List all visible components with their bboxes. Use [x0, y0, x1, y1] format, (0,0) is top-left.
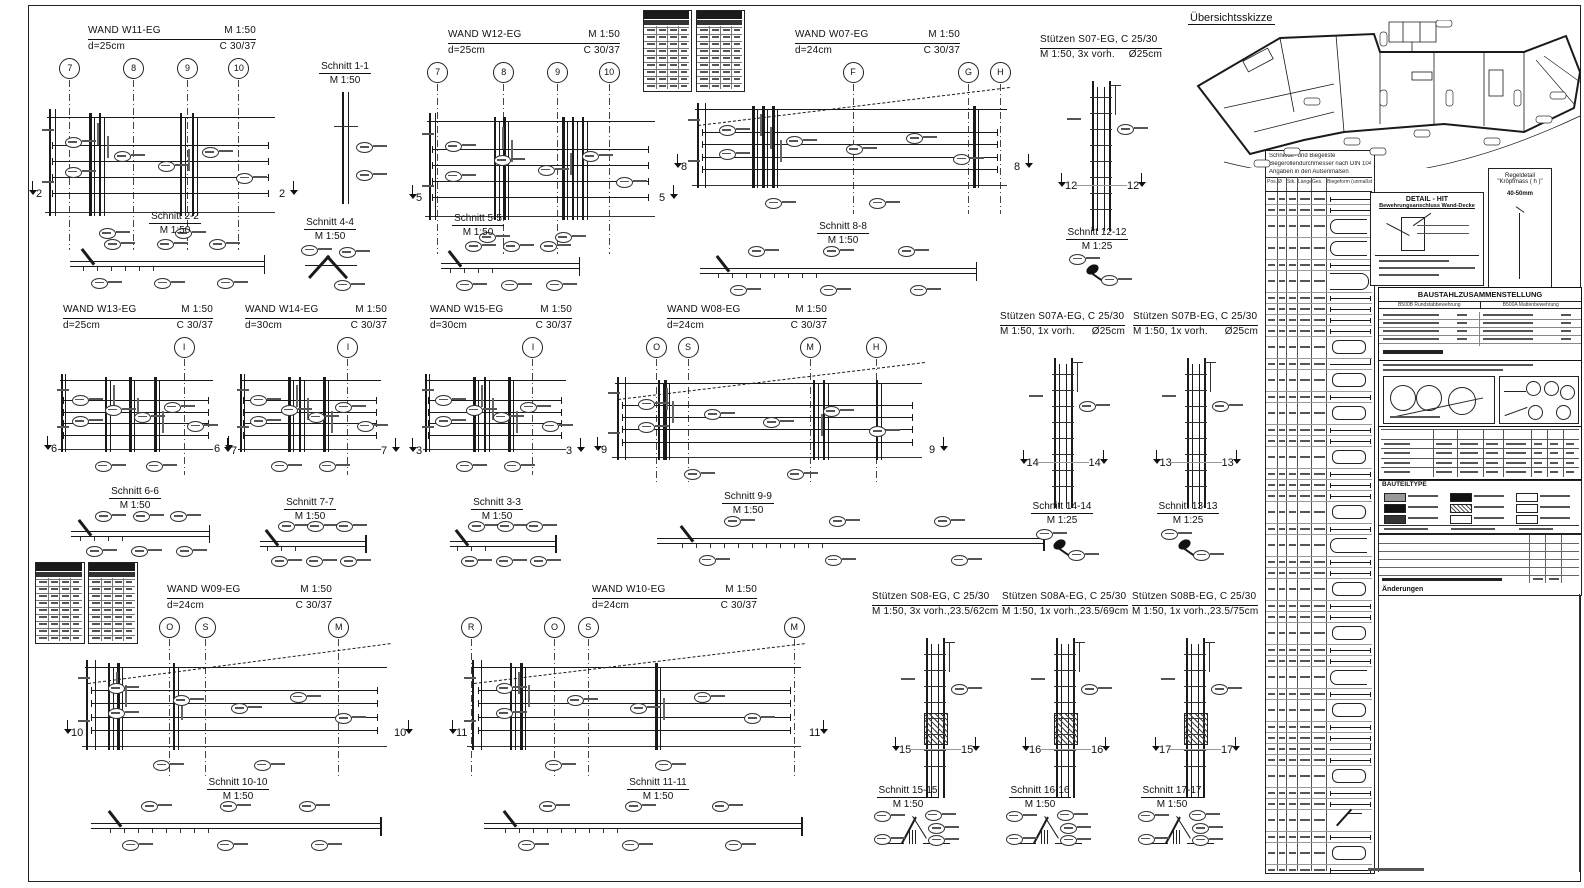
detail-bar1 [1417, 225, 1469, 226]
text-sim [39, 581, 47, 583]
callout-label [171, 281, 185, 283]
line [1266, 523, 1372, 524]
text-sim [723, 50, 730, 52]
text-sim [1289, 869, 1296, 871]
text-sim [1289, 737, 1296, 739]
section-label: Schnitt 6-6M 1:50 [80, 485, 190, 512]
text-sim [1314, 379, 1325, 381]
position-callout [465, 241, 482, 252]
callout-label [288, 464, 302, 466]
line [1266, 237, 1372, 238]
text-sim [723, 43, 730, 45]
text-sim [1486, 462, 1498, 464]
callout-text [827, 250, 836, 252]
line [710, 544, 711, 548]
callout-label [891, 837, 905, 839]
line [1370, 296, 1371, 301]
position-callout [846, 144, 863, 155]
grid-bubble: H [990, 62, 1011, 83]
legend-swatch [1450, 493, 1472, 502]
grid-line [554, 639, 555, 777]
cut-number: 7 [381, 446, 387, 456]
text-sim [659, 85, 666, 87]
column-count: M 1:50, 1x vorh. [1000, 325, 1075, 340]
position-callout [616, 177, 633, 188]
callout-label [1178, 532, 1192, 534]
line [1330, 307, 1331, 312]
text-sim [1436, 471, 1452, 473]
steel-title: BAUSTAHLZUSAMMENSTELLUNG [1379, 290, 1581, 299]
line [450, 269, 451, 273]
line [752, 544, 753, 548]
rotated-label-sim [481, 385, 483, 407]
callout-text [254, 399, 263, 401]
text-sim [1566, 452, 1574, 454]
line [1330, 804, 1370, 805]
callout-label [234, 281, 248, 283]
line [1330, 650, 1370, 651]
callout-label [804, 472, 818, 474]
right-border-right [1579, 594, 1580, 872]
line [648, 178, 649, 185]
text-sim [1300, 198, 1310, 200]
line [697, 20, 742, 25]
line [1090, 209, 1112, 210]
column-title-row: Stützen S07-EG, C 25/30 [1040, 33, 1162, 49]
callout-label [563, 283, 577, 285]
position-callout [335, 402, 352, 413]
position-callout [638, 399, 655, 410]
text-sim [1268, 676, 1275, 678]
cut-arrowhead [1138, 182, 1146, 187]
line [1115, 85, 1116, 115]
text-sim [73, 623, 79, 625]
callout-label [968, 558, 982, 560]
shape-stirrup [1332, 846, 1366, 860]
panel-thickness: d=24cm [795, 44, 832, 59]
wall-drawing: ROSM1111 [460, 617, 815, 783]
cut-arrowhead [577, 447, 585, 452]
line [1381, 467, 1579, 468]
position-callout [1006, 834, 1023, 845]
callout-text [1196, 827, 1205, 829]
grid-bubble: M [328, 617, 349, 638]
text-sim [681, 78, 687, 80]
line [924, 766, 946, 767]
line [1561, 535, 1562, 583]
text-sim [1279, 297, 1285, 299]
text-sim [1289, 297, 1296, 299]
callout-label [572, 235, 586, 237]
section-name: Schnitt 13-13 [1157, 500, 1220, 514]
line [648, 194, 649, 201]
text-sim [104, 595, 111, 597]
position-callout [170, 511, 187, 522]
text-sim [1300, 759, 1310, 761]
position-callout [699, 555, 716, 566]
position-callout [1212, 401, 1229, 412]
line [1330, 562, 1370, 563]
text-sim [1268, 209, 1275, 211]
text-sim [1300, 264, 1310, 266]
line [441, 268, 579, 269]
text-sim [1383, 330, 1439, 332]
position-callout [712, 801, 729, 812]
text-sim [1279, 709, 1285, 711]
callout-text [688, 473, 697, 475]
line [1103, 450, 1104, 459]
line [1370, 560, 1371, 565]
line [49, 109, 51, 216]
text-sim [1268, 528, 1275, 530]
line [1039, 749, 1091, 750]
line [99, 113, 102, 216]
regel-bar-kink [1516, 206, 1525, 213]
callout-label [112, 514, 126, 516]
section-drawing [872, 806, 957, 852]
section-drawing [1160, 527, 1220, 565]
bottom-right-note [1368, 868, 1424, 871]
line [1266, 534, 1372, 535]
line [695, 109, 1007, 110]
callout-text [1082, 405, 1091, 407]
text-sim [1314, 396, 1325, 398]
line [194, 829, 195, 833]
line [238, 449, 381, 450]
callout-text [469, 409, 478, 411]
line [677, 154, 678, 163]
wall-drawing: OSMH99 [605, 337, 935, 491]
line [1185, 422, 1207, 423]
text-sim [92, 609, 100, 611]
line [1061, 173, 1062, 182]
text-sim [1314, 869, 1325, 871]
line [325, 255, 347, 279]
detail-row2 [1379, 267, 1475, 269]
callout-label [89, 398, 103, 400]
callout-text [932, 827, 941, 829]
text-sim [1460, 471, 1478, 473]
line [129, 377, 132, 452]
line [153, 267, 154, 271]
column-size: Ø25cm [1225, 325, 1258, 340]
panel-title: WAND W13-EG [63, 303, 137, 318]
text-sim [1289, 693, 1296, 695]
text-sim [1314, 528, 1325, 530]
text-sim [1550, 471, 1558, 473]
callout-label [356, 250, 370, 252]
detail-hit-box: DETAIL - HIT Bewehrungsanschluss Wand-De… [1370, 192, 1484, 286]
text-sim [659, 50, 666, 52]
text-sim [1300, 748, 1310, 750]
line [377, 714, 378, 721]
position-callout [829, 516, 846, 527]
position-callout [158, 161, 175, 172]
text-sim [422, 426, 434, 428]
position-callout [869, 198, 886, 209]
line [1266, 556, 1372, 557]
position-callout [308, 412, 325, 423]
line [1184, 766, 1206, 767]
callout-text [826, 410, 835, 412]
line [716, 255, 731, 273]
line [767, 109, 768, 188]
text-sim [1289, 561, 1296, 563]
text-sim [1300, 649, 1310, 651]
text-sim [39, 623, 47, 625]
line [304, 380, 305, 452]
text-sim [723, 64, 730, 66]
cut-arrowhead [1232, 746, 1240, 751]
line [1266, 358, 1372, 359]
text-sim [115, 609, 122, 611]
line [1266, 479, 1372, 480]
position-callout [281, 405, 298, 416]
position-callout [356, 170, 373, 181]
callout-label [352, 405, 366, 407]
line [1266, 490, 1372, 491]
line [656, 26, 657, 89]
cut-number: 17 [1159, 745, 1171, 755]
text-sim [1408, 506, 1438, 508]
text-sim [51, 616, 58, 618]
callout-text [824, 289, 833, 291]
section-label: Schnitt 12-12M 1:25 [1042, 226, 1152, 253]
text-sim [126, 616, 132, 618]
text-sim [1268, 308, 1275, 310]
text-sim [734, 71, 740, 73]
callout-label [288, 559, 302, 561]
text-sim [62, 581, 69, 583]
text-sim [1483, 330, 1533, 332]
text-sim [1279, 484, 1285, 486]
line [1054, 670, 1076, 671]
text-sim [1550, 452, 1558, 454]
section-scale: M 1:50 [290, 74, 400, 87]
grid-bubble: O [159, 617, 180, 638]
callout-text [522, 844, 531, 846]
line [95, 660, 96, 750]
position-callout [928, 823, 945, 834]
callout-text [161, 165, 170, 167]
callout-label [543, 524, 557, 526]
text-sim [1314, 803, 1325, 805]
line [1330, 329, 1331, 334]
callout-label [765, 249, 779, 251]
section-label: Schnitt 9-9M 1:50 [693, 490, 803, 517]
column-subtitle-row: M 1:50, 1x vorh.Ø25cm [1133, 325, 1258, 340]
line [108, 663, 111, 749]
callout-label [1210, 553, 1224, 555]
text-sim [1483, 338, 1533, 340]
position-callout [1192, 823, 1209, 834]
text-sim [1540, 517, 1570, 519]
line [492, 269, 493, 273]
callout-label [803, 139, 817, 141]
rotated-label-sim [162, 411, 164, 433]
section-drawing [445, 520, 560, 570]
line [108, 537, 109, 541]
callout-text [160, 243, 169, 245]
position-callout [250, 416, 267, 427]
line [1266, 578, 1372, 579]
text-sim [1279, 748, 1285, 750]
line [881, 383, 882, 460]
text-sim [1451, 528, 1495, 530]
text-sim [422, 389, 434, 391]
line [1330, 208, 1331, 213]
panel-title-row: WAND W12-EGM 1:50 [448, 28, 620, 44]
position-callout [501, 280, 518, 291]
shape-stirrup [1332, 450, 1366, 464]
text-sim [1566, 443, 1574, 445]
text-sim [62, 595, 69, 597]
panel-thickness: d=24cm [167, 599, 204, 614]
line [334, 126, 358, 127]
section-label: Schnitt 11-11M 1:50 [603, 776, 713, 803]
panel-title-row: WAND W08-EGM 1:50 [667, 303, 827, 319]
callout-text [1064, 827, 1073, 829]
line [697, 103, 699, 188]
line [489, 380, 490, 452]
line [432, 194, 433, 201]
text-sim [670, 43, 677, 45]
line [667, 26, 668, 89]
text-sim [1561, 314, 1571, 316]
position-callout [336, 521, 353, 532]
line [376, 409, 377, 416]
rotated-label-sim [770, 127, 772, 149]
text-sim [1300, 456, 1310, 458]
callout-text [257, 764, 266, 766]
line [1266, 688, 1372, 689]
text-sim [734, 36, 740, 38]
position-callout [1189, 810, 1206, 821]
line [94, 537, 95, 541]
position-callout [86, 546, 103, 557]
callout-label [510, 415, 524, 417]
text-sim [659, 64, 666, 66]
line [1266, 699, 1372, 700]
legend-swatch [1450, 504, 1472, 513]
text-sim [1300, 297, 1310, 299]
column-count: M 1:50, 3x vorh., [872, 605, 950, 620]
text-sim [1268, 572, 1275, 574]
callout-text [460, 465, 469, 467]
text-sim [1483, 314, 1533, 316]
text-sim [1279, 209, 1285, 211]
position-callout [176, 546, 193, 557]
section-drawing [1035, 527, 1095, 565]
line [166, 829, 167, 833]
text-sim [1279, 264, 1285, 266]
line [802, 274, 803, 278]
text-sim [1506, 452, 1526, 454]
callout-text [1215, 688, 1224, 690]
text-sim [1279, 676, 1285, 678]
line [777, 109, 778, 188]
text-sim [1289, 225, 1296, 227]
text-sim [1300, 660, 1310, 662]
line [1109, 85, 1121, 86]
callout-text [558, 236, 567, 238]
rotated-label-sim [113, 385, 115, 407]
text-sim [1279, 412, 1285, 414]
line [997, 129, 998, 136]
section-scale: M 1:25 [1133, 514, 1243, 527]
section-drawing [688, 245, 988, 300]
text-sim [1300, 605, 1310, 607]
callout-label [163, 464, 177, 466]
text-sim [42, 181, 54, 183]
text-sim [700, 64, 708, 66]
grid-bubble: M [800, 337, 821, 358]
section-drawing [78, 800, 393, 855]
text-sim [1268, 605, 1275, 607]
callout-text [873, 202, 882, 204]
cut-arrowhead [449, 729, 457, 734]
grid-line [205, 639, 206, 777]
regeldetail-box: Regeldetail "Kröpfmass ( h )" 40-50mm [1488, 168, 1552, 302]
callout-label [535, 843, 549, 845]
cut-number: 11 [456, 728, 467, 738]
column-subtitle-row: M 1:50, 3x vorh.Ø25cm [1040, 48, 1162, 63]
position-callout [154, 278, 171, 289]
line [1054, 702, 1076, 703]
line [58, 449, 213, 450]
line [448, 250, 463, 268]
line [1348, 813, 1362, 814]
callout-text [496, 416, 505, 418]
text-sim [1314, 429, 1325, 431]
callout-text [448, 145, 457, 147]
text-sim [1300, 440, 1310, 442]
line [658, 380, 661, 460]
text-sim [1300, 225, 1310, 227]
text-sim [1279, 836, 1285, 838]
text-sim [1289, 588, 1296, 590]
line [702, 129, 703, 136]
text-sim [670, 29, 677, 31]
text-sim [700, 57, 708, 59]
text-sim [1279, 319, 1285, 321]
position-callout [1069, 254, 1086, 265]
section-name: Schnitt 6-6 [109, 485, 161, 499]
callout-text [1009, 838, 1018, 840]
section-name: Schnitt 5-5 [452, 212, 504, 226]
position-callout [105, 405, 122, 416]
line [912, 402, 913, 409]
wall-panel-w08: WAND W08-EGM 1:50d=24cmC 30/37OSMH99 [605, 303, 935, 491]
text-sim [1300, 632, 1310, 634]
text-sim [700, 29, 708, 31]
text-sim [1279, 572, 1285, 574]
legend-swatch [1516, 493, 1538, 502]
shape-stirrup [1332, 340, 1366, 354]
line [1503, 429, 1504, 477]
text-sim [1268, 495, 1275, 497]
line [244, 374, 245, 452]
text-sim [1268, 649, 1275, 651]
text-sim [659, 29, 666, 31]
position-callout [335, 713, 352, 724]
text-sim [1279, 660, 1285, 662]
text-sim [681, 36, 687, 38]
hook-circle-1 [1526, 381, 1541, 396]
cut-arrowhead [1022, 746, 1030, 751]
line [1381, 458, 1579, 459]
callout-label [1086, 257, 1100, 259]
